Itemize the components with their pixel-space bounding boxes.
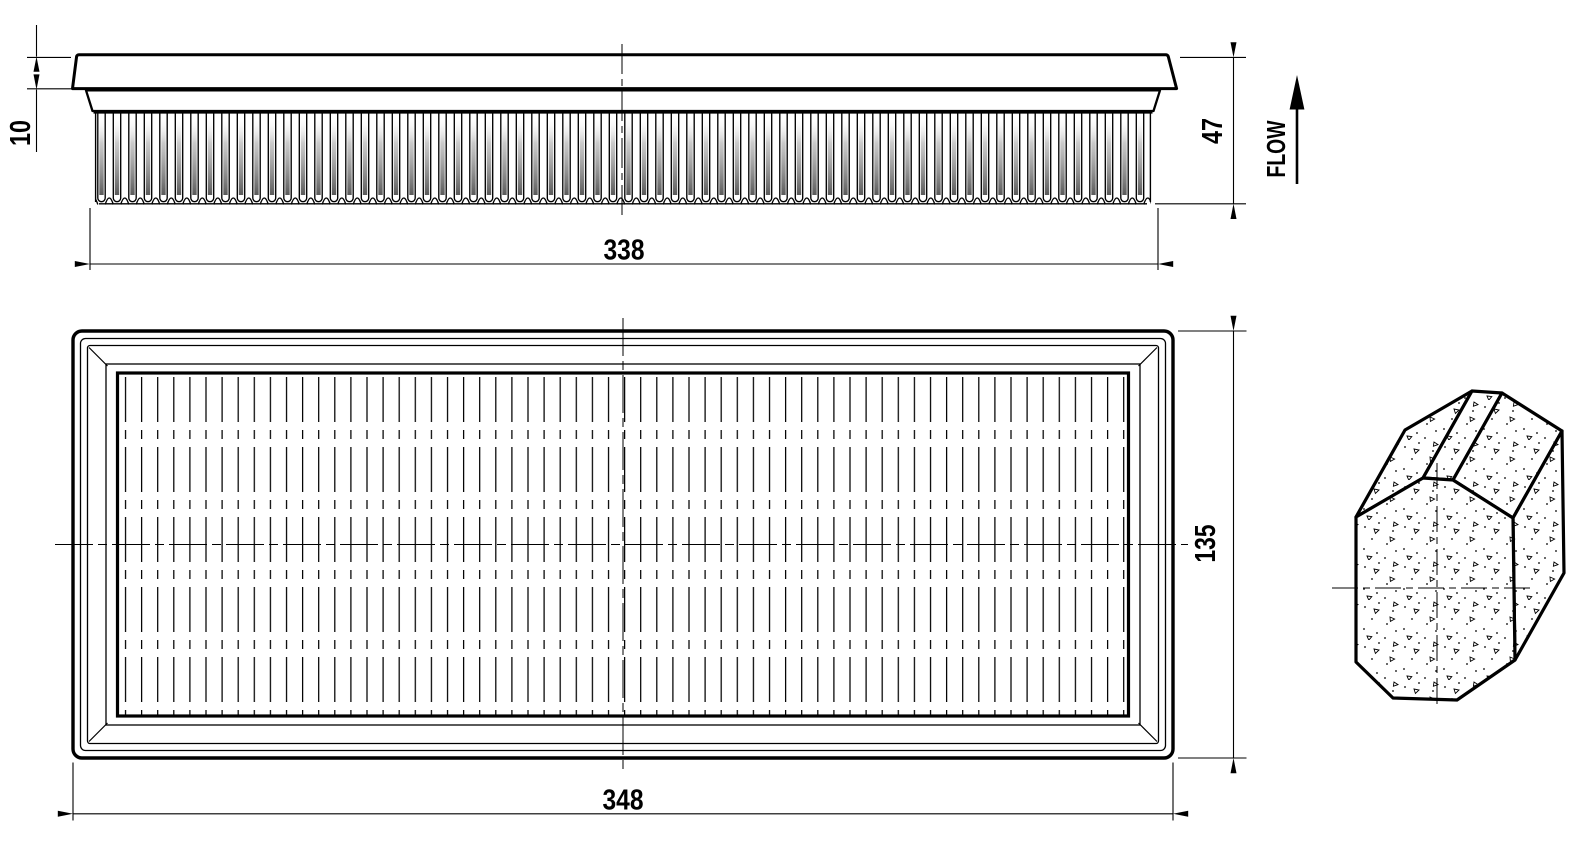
dimension-pleat-pack-length: 338 xyxy=(90,208,1158,270)
dimension-lid-height: 10 xyxy=(5,25,71,152)
flow-indicator: FLOW xyxy=(1261,75,1304,184)
dimension-label-pleat-pack-length: 338 xyxy=(604,235,645,267)
dimension-overall-length: 348 xyxy=(73,763,1173,821)
dimension-overall-width: 135 xyxy=(1178,331,1247,758)
air-filter-technical-drawing: 10 338 47 FLOW xyxy=(0,0,1581,868)
dimension-label-lid-height: 10 xyxy=(5,120,37,146)
pleat-media-side xyxy=(95,113,1151,205)
foam-face-front-texture xyxy=(1356,478,1515,700)
seal-flange-outline xyxy=(86,90,1160,111)
dimension-label-overall-length: 348 xyxy=(603,785,644,817)
drawing-canvas: 10 338 47 FLOW xyxy=(0,0,1581,868)
flow-label: FLOW xyxy=(1261,120,1291,177)
dimension-label-total-height: 47 xyxy=(1197,118,1229,144)
plan-view xyxy=(55,318,1188,771)
lid-outline xyxy=(73,55,1177,89)
side-view xyxy=(73,44,1177,216)
flow-arrow-icon xyxy=(1290,75,1305,110)
dimension-label-overall-width: 135 xyxy=(1190,525,1222,563)
isometric-view xyxy=(1332,391,1564,709)
